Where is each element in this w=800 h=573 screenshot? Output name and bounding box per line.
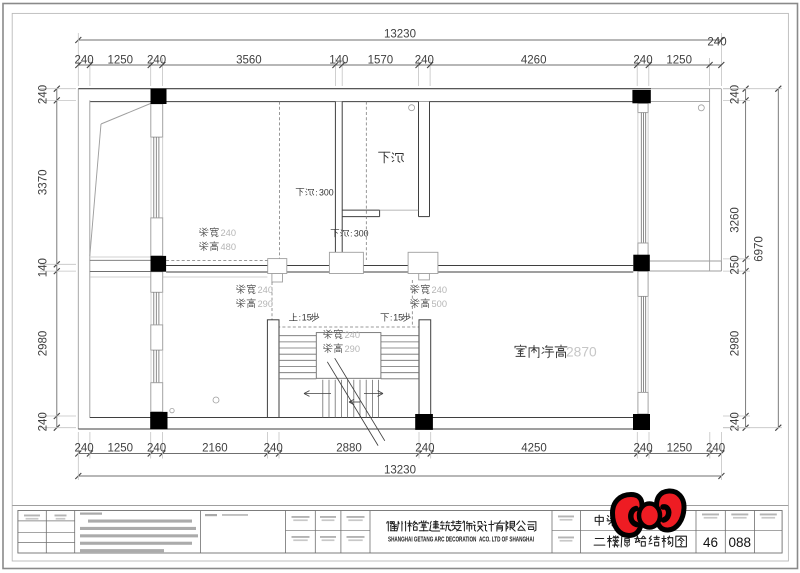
- svg-text:290: 290: [345, 344, 361, 354]
- svg-text:240: 240: [75, 55, 94, 67]
- svg-text:SHANGHAI GETANG ARC DECORATION: SHANGHAI GETANG ARC DECORATION ACO. LTD …: [388, 535, 534, 544]
- svg-text:240: 240: [706, 443, 725, 455]
- svg-text:300: 300: [319, 187, 334, 197]
- svg-text:290: 290: [258, 299, 274, 309]
- svg-text:1250: 1250: [108, 55, 134, 67]
- svg-text:240: 240: [147, 443, 166, 455]
- svg-text:240: 240: [730, 85, 742, 104]
- svg-text:1250: 1250: [108, 443, 134, 455]
- svg-text:240: 240: [258, 285, 274, 295]
- svg-text:140: 140: [38, 258, 50, 277]
- svg-text:4250: 4250: [521, 443, 547, 455]
- svg-text::: :: [390, 312, 392, 322]
- svg-text:13230: 13230: [384, 29, 416, 41]
- svg-text:240: 240: [633, 55, 652, 67]
- svg-text:240: 240: [730, 412, 742, 431]
- svg-text:240: 240: [432, 285, 448, 295]
- svg-text::: :: [350, 228, 352, 238]
- svg-text:15: 15: [393, 312, 403, 322]
- svg-text:3560: 3560: [236, 55, 262, 67]
- svg-text:480: 480: [221, 242, 237, 252]
- svg-text:1250: 1250: [666, 55, 692, 67]
- svg-text:2980: 2980: [38, 331, 50, 357]
- svg-text:240: 240: [345, 330, 361, 340]
- svg-text:46: 46: [703, 535, 718, 550]
- svg-text:140: 140: [329, 55, 348, 67]
- svg-text:13230: 13230: [384, 465, 416, 477]
- svg-text:2980: 2980: [730, 331, 742, 357]
- svg-text:240: 240: [38, 85, 50, 104]
- svg-text:300: 300: [354, 228, 369, 238]
- svg-text:240: 240: [38, 412, 50, 431]
- svg-text:240: 240: [415, 55, 434, 67]
- svg-text:1570: 1570: [368, 55, 394, 67]
- svg-text:240: 240: [415, 443, 434, 455]
- svg-text:1250: 1250: [667, 443, 693, 455]
- svg-text:240: 240: [634, 443, 653, 455]
- svg-text:15: 15: [302, 312, 312, 322]
- svg-text:2880: 2880: [336, 443, 362, 455]
- svg-text:3370: 3370: [38, 170, 50, 196]
- svg-text::: :: [299, 312, 301, 322]
- svg-text::: :: [315, 187, 317, 197]
- svg-text:240: 240: [264, 443, 283, 455]
- svg-text:2160: 2160: [202, 443, 228, 455]
- svg-text:3260: 3260: [730, 207, 742, 233]
- svg-text:250: 250: [730, 255, 742, 274]
- svg-text:240: 240: [75, 443, 94, 455]
- svg-text:088: 088: [729, 535, 752, 550]
- svg-text:2870: 2870: [566, 345, 597, 360]
- svg-text:240: 240: [707, 37, 726, 49]
- svg-text:6970: 6970: [754, 236, 766, 262]
- svg-text:4260: 4260: [521, 55, 547, 67]
- svg-text:240: 240: [221, 228, 237, 238]
- svg-text:240: 240: [147, 55, 166, 67]
- svg-text:500: 500: [432, 299, 448, 309]
